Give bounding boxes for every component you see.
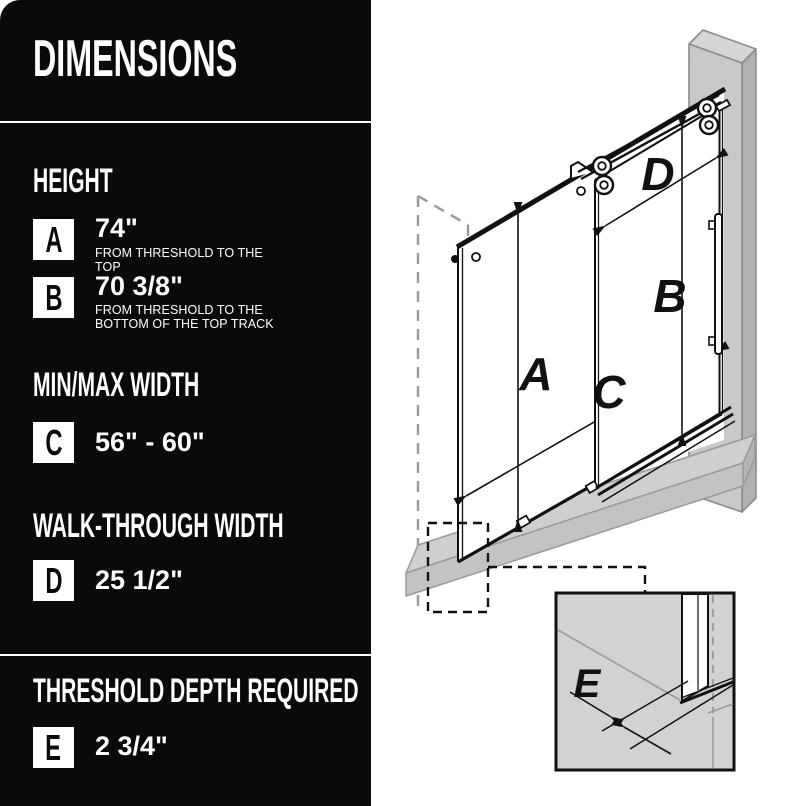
shower-door-diagram: A B C D E — [372, 0, 806, 806]
value-a: 74" — [95, 215, 138, 242]
spec-panel: DIMENSIONS HEIGHT A 74" FROM THRESHOLD T… — [0, 0, 371, 806]
description-a: FROM THRESHOLD TO THE TOP — [95, 246, 290, 274]
description-b: FROM THRESHOLD TO THE BOTTOM OF THE TOP … — [95, 303, 290, 331]
letter-a-label: A — [45, 222, 62, 258]
inset-glass-panel — [682, 594, 708, 701]
section-heading-minmax-width: MIN/MAX WIDTH — [33, 368, 301, 402]
diagram-label-c: C — [592, 366, 626, 418]
diagram-label-d: D — [641, 148, 674, 200]
diagram-label-b: B — [653, 270, 686, 322]
glass-hole — [472, 253, 480, 261]
letter-b-label: B — [45, 280, 62, 316]
dimension-letter-a: A — [33, 219, 74, 260]
diagram-label-a: A — [518, 348, 552, 400]
dimension-letter-c: C — [33, 422, 74, 463]
letter-c-label: C — [45, 425, 62, 461]
dimensions-infographic: DIMENSIONS HEIGHT A 74" FROM THRESHOLD T… — [0, 0, 806, 806]
letter-e-label: E — [46, 730, 62, 766]
glass-hole-2 — [577, 187, 585, 195]
diagram-label-e: E — [574, 662, 602, 706]
letter-d-label: D — [45, 563, 62, 599]
value-c: 56" - 60" — [95, 429, 205, 456]
dimension-letter-d: D — [33, 560, 74, 601]
page-title: DIMENSIONS — [33, 33, 362, 85]
section-heading-height: HEIGHT — [33, 164, 161, 198]
value-d: 25 1/2" — [95, 567, 183, 594]
threshold-detail-inset: E — [556, 593, 734, 770]
value-b: 70 3/8" — [95, 273, 183, 300]
divider-bottom — [0, 654, 371, 656]
wall-clamp — [451, 255, 459, 263]
divider-top — [0, 121, 371, 123]
value-e: 2 3/4" — [95, 733, 168, 760]
dimension-letter-b: B — [33, 277, 74, 318]
dimension-letter-e: E — [33, 727, 74, 768]
